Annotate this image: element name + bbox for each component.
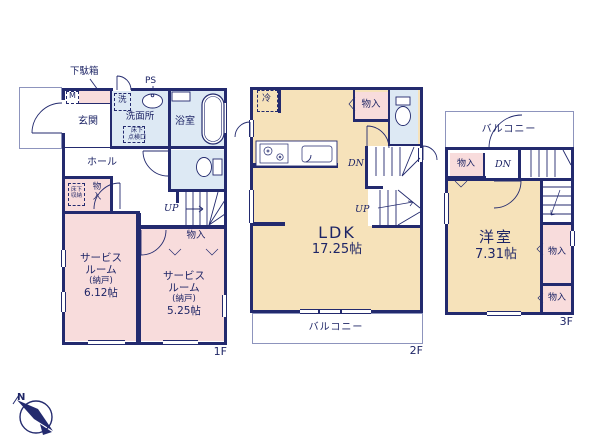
entrance-door-arc	[32, 103, 62, 133]
label-getabako: 下駄箱	[70, 67, 99, 77]
stairs-3f	[531, 150, 571, 215]
service2-door-arc	[141, 230, 166, 255]
stairs-2f	[376, 147, 420, 225]
stairhall-door-arc-2f	[367, 126, 389, 148]
label-up-1f: UP	[164, 204, 178, 214]
toilet1f-tank-icon	[213, 159, 222, 175]
floor-label-1f: 1F	[200, 346, 227, 358]
label-bathroom: 浴室	[165, 116, 205, 127]
label-senmenjo: 洗面所	[115, 112, 165, 122]
label-underfloor-access: 床下 点検口	[124, 128, 150, 141]
label-service1: サービス ルーム (納戸) 6.12帖	[66, 253, 136, 299]
label-closet-3f-mid: 物入	[537, 248, 577, 258]
toilet1f-bowl-icon	[197, 158, 212, 177]
label-underfloor-storage: 床下 収納	[68, 187, 85, 199]
getabako-leader-line	[90, 79, 98, 90]
label-service2: サービス ルーム (納戸) 5.25帖	[146, 271, 222, 317]
ps-box	[172, 92, 190, 101]
floor-plan-canvas: 下駄箱 M 玄関 洗 PS 洗面所 床下 点検口 浴室 ホール 床下 収納 物 …	[0, 0, 600, 447]
label-closet-3f-top: 物入	[446, 160, 486, 170]
toilet1f-door-arc	[143, 151, 168, 176]
label-closet-3f-bottom: 物入	[537, 294, 577, 304]
label-closet-1f: 物入	[176, 231, 216, 241]
exterior-door-arc-2f-right	[423, 146, 437, 160]
floor-label-3f: 3F	[546, 316, 573, 328]
yoshitsu-door-arc	[494, 181, 521, 208]
label-up-2f: UP	[355, 205, 369, 215]
label-meter: M	[69, 92, 76, 101]
floor-label-2f: 2F	[396, 345, 423, 357]
label-ldk-size: 17.25帖	[287, 243, 387, 257]
exterior-door-arc-2f-left	[235, 122, 250, 137]
label-fridge: 冷	[262, 95, 271, 105]
stairs-1f	[186, 192, 225, 225]
label-dn-2f: DN	[348, 159, 364, 169]
label-hall: ホール	[82, 157, 122, 168]
label-ps: PS	[145, 77, 156, 87]
washbasin-icon	[143, 94, 163, 108]
label-balcony-2f: バルコニー	[286, 322, 386, 333]
label-yoshitsu: 洋室	[446, 229, 546, 246]
toilet2f-bowl-icon	[396, 107, 411, 126]
backdoor-arc	[117, 76, 131, 90]
toilet2f-tank-icon	[396, 97, 410, 105]
label-washer: 洗	[118, 96, 127, 105]
label-dn-3f: DN	[495, 160, 511, 170]
label-ldk: LDK	[287, 224, 387, 242]
label-genkan: 玄関	[68, 116, 108, 127]
label-yoshitsu-size: 7.31帖	[446, 248, 546, 262]
label-closet-2f: 物入	[351, 100, 391, 110]
label-closet-hall: 物 入	[91, 183, 103, 202]
closet-door-marks-1f	[169, 249, 218, 255]
label-balcony-3f: バルコニー	[459, 124, 559, 135]
compass-north-label: N	[17, 392, 25, 403]
